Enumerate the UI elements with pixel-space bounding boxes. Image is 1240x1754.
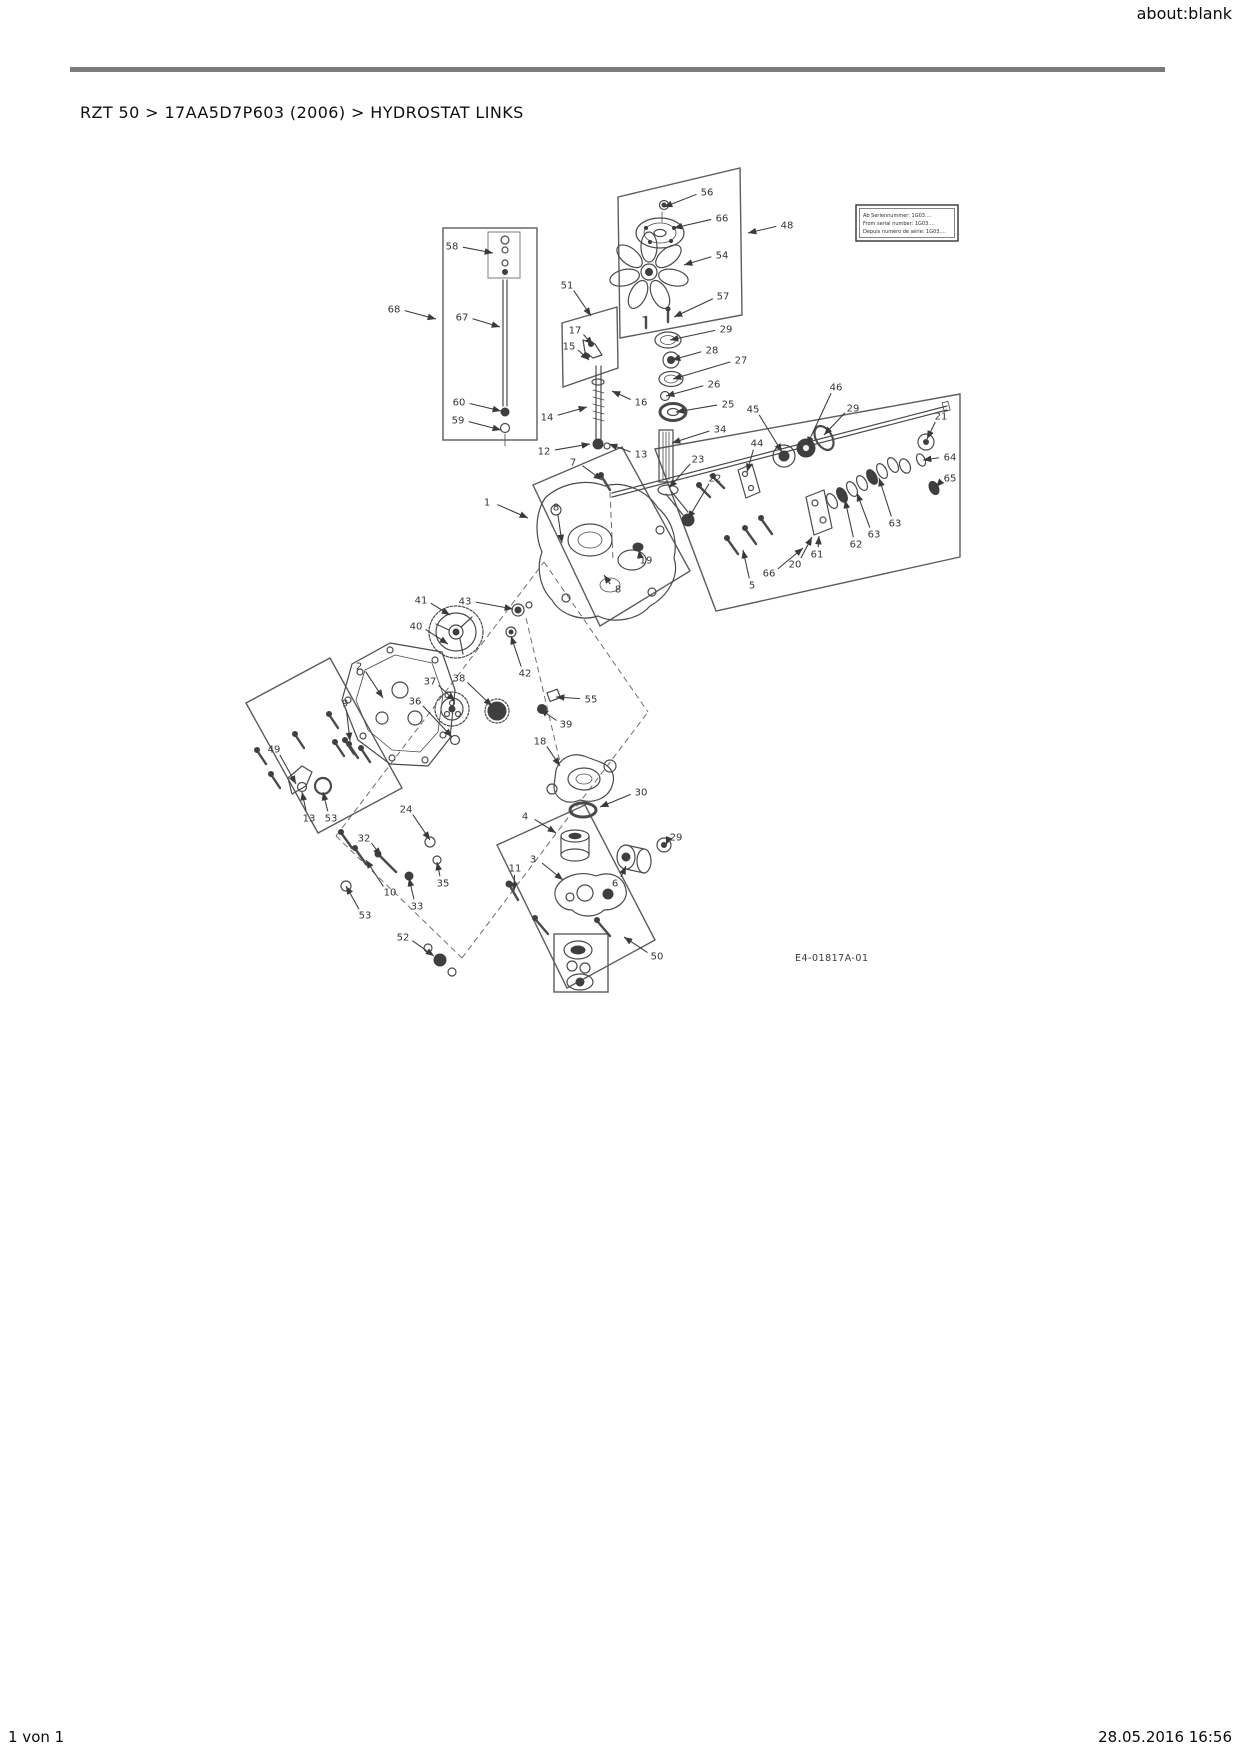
callout-46: 46 — [830, 383, 843, 394]
leader-line-41 — [431, 603, 450, 615]
callout-3: 3 — [530, 855, 536, 866]
callout-48: 48 — [781, 221, 794, 232]
bolt-7 — [602, 477, 610, 490]
control-rod-assembly — [501, 236, 510, 446]
callout-22: 22 — [709, 474, 722, 485]
leader-line-1 — [497, 505, 528, 518]
callout-2: 2 — [356, 662, 362, 673]
push-rod-spring — [592, 366, 610, 490]
callout-40: 40 — [410, 622, 423, 633]
callout-30: 30 — [635, 788, 648, 799]
callout-54: 54 — [716, 251, 729, 262]
leader-line-61 — [818, 536, 819, 547]
callout-66: 66 — [716, 214, 729, 225]
callout-66: 66 — [763, 569, 776, 580]
fitting-12 — [593, 439, 603, 449]
callout-34: 34 — [714, 425, 727, 436]
leader-line-29 — [666, 841, 667, 845]
leader-line-12 — [555, 444, 590, 450]
callout-52: 52 — [397, 933, 410, 944]
callout-11: 11 — [509, 864, 522, 875]
leader-line-11 — [514, 875, 515, 891]
leader-line-57 — [674, 299, 713, 317]
leader-line-24 — [413, 815, 430, 840]
callout-5: 5 — [749, 581, 755, 592]
callout-14: 14 — [541, 413, 554, 424]
leader-line-60 — [470, 403, 501, 411]
callout-19: 19 — [640, 556, 653, 567]
callout-15: 15 — [563, 342, 576, 353]
callout-29: 29 — [847, 404, 860, 415]
washer-24 — [425, 837, 435, 847]
note-line-1: Ab Seriennummer: 1G03.... — [863, 213, 932, 219]
rod-32 — [380, 856, 396, 872]
callout-37: 37 — [424, 677, 437, 688]
pulley-6 — [617, 845, 651, 873]
callout-63: 63 — [868, 530, 881, 541]
leader-line-63 — [879, 478, 891, 516]
leader-line-63 — [857, 493, 870, 528]
leader-line-62 — [845, 500, 853, 537]
note-line-2: From serial number: 1G03.... — [863, 221, 935, 227]
washer-23 — [658, 485, 678, 495]
callout-53: 53 — [325, 814, 338, 825]
bracket-20 — [806, 490, 832, 535]
spacer-26 — [661, 392, 670, 401]
callout-41: 41 — [415, 596, 428, 607]
callout-63: 63 — [889, 519, 902, 530]
callout-32: 32 — [358, 834, 371, 845]
leader-line-8 — [604, 575, 610, 584]
leader-line-53 — [346, 886, 359, 909]
callout-56: 56 — [701, 188, 714, 199]
callout-35: 35 — [437, 879, 450, 890]
callout-65: 65 — [944, 474, 957, 485]
o-ring-53 — [315, 778, 331, 794]
callout-44: 44 — [751, 439, 764, 450]
rod-fitting-60 — [501, 408, 509, 416]
callout-16: 16 — [635, 398, 648, 409]
leader-line-67 — [473, 319, 500, 327]
leader-line-22 — [688, 484, 709, 519]
leader-line-53 — [323, 792, 328, 811]
bracket-17-15 — [583, 340, 602, 359]
callout-50: 50 — [651, 952, 664, 963]
bearing-25 — [660, 404, 686, 421]
callout-25: 25 — [722, 400, 735, 411]
callout-33: 33 — [411, 902, 424, 913]
bracket-3-assembly — [506, 874, 626, 936]
callout-6: 6 — [612, 879, 618, 890]
bracket-44 — [738, 464, 760, 498]
coupling-52 — [434, 954, 446, 966]
coupler-55 — [547, 689, 560, 701]
callout-21: 21 — [935, 412, 948, 423]
callout-64: 64 — [944, 453, 957, 464]
seal-kit-contents — [564, 941, 593, 990]
retaining-pins — [643, 307, 670, 328]
leader-line-58 — [463, 247, 493, 253]
leader-line-34 — [672, 431, 709, 443]
leader-line-52 — [412, 941, 434, 956]
leader-line-10 — [366, 860, 383, 886]
serial-note-box: Ab Seriennummer: 1G03.... From serial nu… — [856, 205, 958, 241]
leader-line-3 — [542, 863, 563, 880]
callout-28: 28 — [706, 346, 719, 357]
callout-29: 29 — [670, 833, 683, 844]
callout-13: 13 — [303, 814, 316, 825]
callout-4: 4 — [522, 812, 528, 823]
callout-61: 61 — [811, 550, 824, 561]
callout-60: 60 — [453, 398, 466, 409]
callout-42: 42 — [519, 669, 532, 680]
callout-27: 27 — [735, 356, 748, 367]
callout-17: 17 — [569, 326, 582, 337]
callout-49: 49 — [268, 745, 281, 756]
callout-39: 39 — [560, 720, 573, 731]
leader-line-51 — [574, 291, 591, 316]
callout-45: 45 — [747, 405, 760, 416]
callout-18: 18 — [534, 737, 547, 748]
leader-line-26 — [666, 386, 703, 396]
callout-38: 38 — [453, 674, 466, 685]
callout-20: 20 — [789, 560, 802, 571]
bracket-49 — [288, 766, 312, 794]
leader-line-42 — [511, 636, 521, 666]
callout-23: 23 — [692, 455, 705, 466]
washer-29 — [655, 332, 681, 348]
parts-diagram-svg: Ab Seriennummer: 1G03.... From serial nu… — [0, 0, 1240, 1754]
rod-fitting-59 — [501, 424, 510, 433]
leader-line-54 — [684, 257, 711, 265]
pulley — [636, 218, 684, 248]
washer-65 — [927, 480, 941, 496]
nut-22 — [682, 514, 694, 526]
callout-8: 8 — [553, 503, 559, 514]
callout-43: 43 — [459, 597, 472, 608]
callout-36: 36 — [409, 697, 422, 708]
leader-line-16 — [612, 391, 631, 400]
callout-51: 51 — [561, 281, 574, 292]
leader-line-2 — [366, 672, 383, 698]
note-line-3: Depuis numéro de série: 1G03.... — [863, 228, 946, 235]
leader-line-5 — [743, 550, 749, 578]
callout-layer: 5666485457511715292827262534232216141213… — [268, 188, 957, 963]
callout-1: 1 — [484, 498, 490, 509]
drawing-number: E4-01817A-01 — [795, 953, 869, 964]
page-footer-datetime: 28.05.2016 16:56 — [1098, 1728, 1232, 1746]
callout-62: 62 — [850, 540, 863, 551]
mounting-hardware — [255, 712, 457, 977]
callout-29: 29 — [720, 325, 733, 336]
callout-8: 8 — [615, 585, 621, 596]
input-shaft-stack — [655, 332, 694, 526]
callout-12: 12 — [538, 447, 551, 458]
callout-24: 24 — [400, 805, 413, 816]
callout-53: 53 — [359, 911, 372, 922]
callout-67: 67 — [456, 313, 469, 324]
printed-page: about:blank RZT 50 > 17AA5D7P603 (2006) … — [0, 0, 1240, 1754]
top-pulley-assembly — [608, 201, 690, 329]
page-footer-pagecount: 1 von 1 — [8, 1728, 64, 1746]
callout-57: 57 — [717, 292, 730, 303]
callout-7: 7 — [570, 458, 576, 469]
leader-line-28 — [672, 352, 701, 360]
callout-9: 9 — [342, 699, 348, 710]
leader-line-68 — [405, 311, 436, 319]
leader-line-19 — [639, 550, 640, 554]
leader-line-33 — [409, 878, 414, 899]
leader-line-14 — [558, 407, 587, 415]
coupler-4 — [561, 830, 589, 861]
leader-line-56 — [664, 194, 697, 207]
leader-line-27 — [673, 362, 730, 379]
leader-line-29 — [670, 330, 715, 340]
plug-19 — [633, 543, 643, 551]
leader-line-38 — [467, 683, 492, 706]
callout-58: 58 — [446, 242, 459, 253]
leader-line-43 — [476, 602, 513, 609]
axle-hardware — [697, 423, 942, 554]
pump-18-body — [554, 755, 614, 802]
ring-27 — [659, 372, 683, 387]
callout-68: 68 — [388, 305, 401, 316]
splined-shaft-34 — [659, 430, 673, 482]
leader-line-59 — [469, 422, 501, 430]
leader-line-18 — [547, 746, 560, 766]
callout-10: 10 — [384, 888, 397, 899]
callout-55: 55 — [585, 695, 598, 706]
callout-59: 59 — [452, 416, 465, 427]
leader-line-48 — [748, 226, 776, 233]
callout-13: 13 — [635, 450, 648, 461]
callout-26: 26 — [708, 380, 721, 391]
pump-panel-outline — [497, 805, 655, 988]
leader-line-23 — [669, 464, 690, 488]
